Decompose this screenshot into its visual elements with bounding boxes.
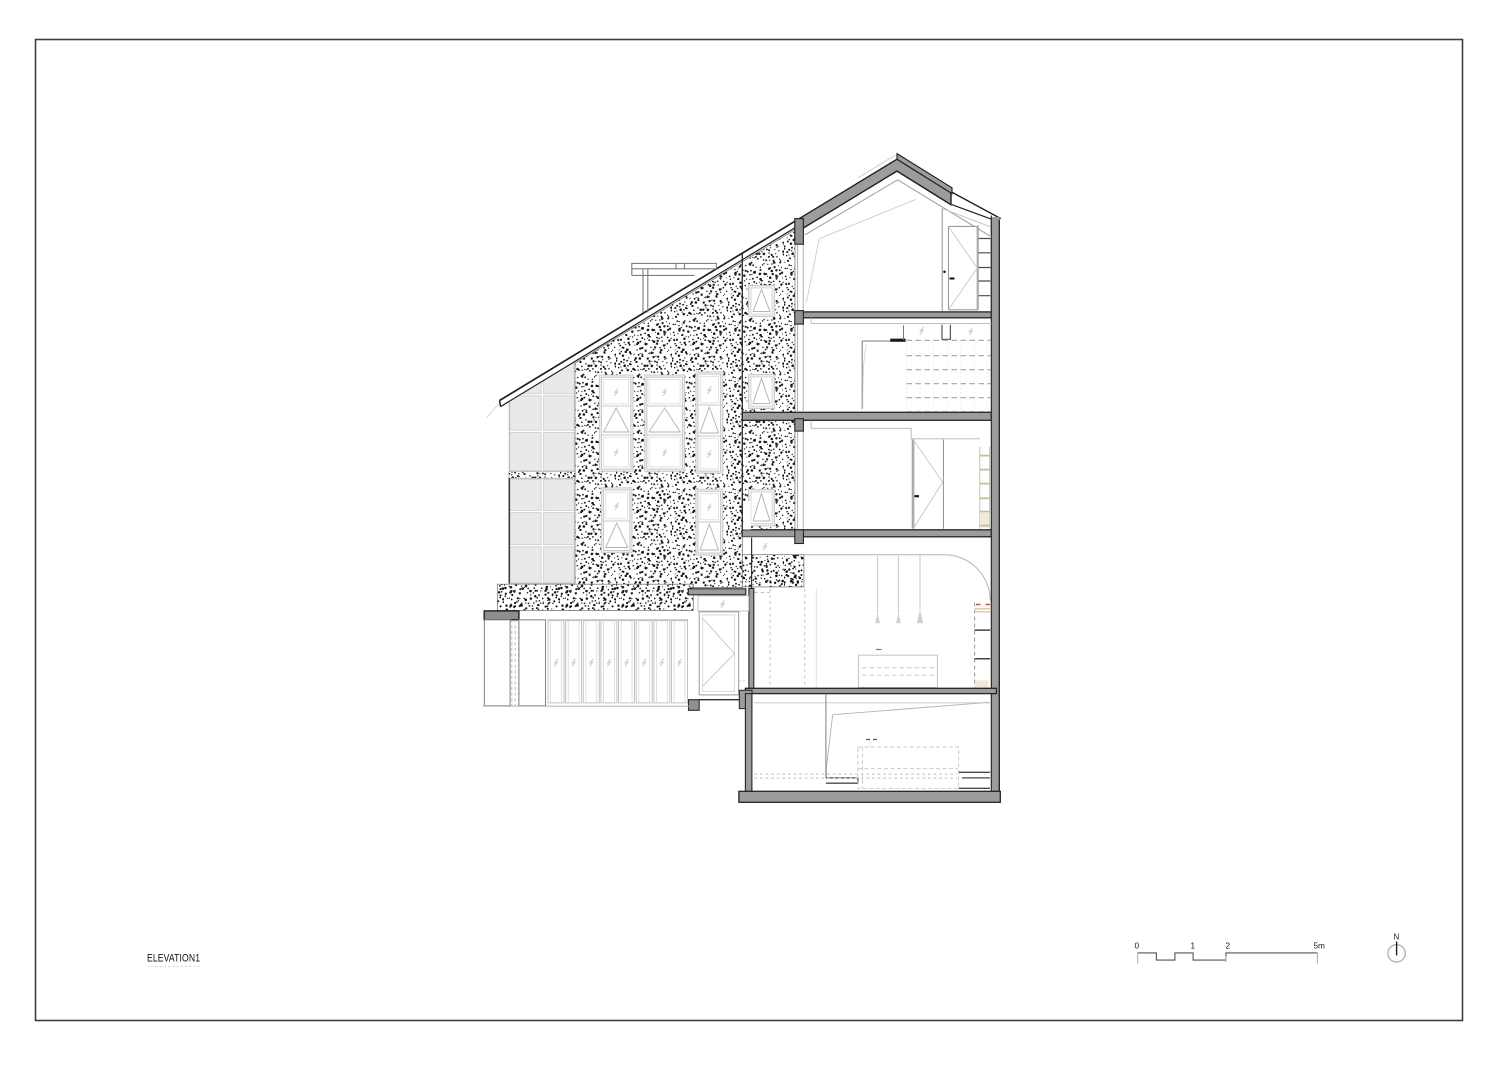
svg-text:2: 2: [1226, 942, 1231, 951]
svg-text:N: N: [1394, 933, 1400, 942]
svg-text:0: 0: [1135, 942, 1140, 951]
svg-text:1: 1: [1191, 942, 1196, 951]
svg-text:ELEVATION1: ELEVATION1: [147, 952, 200, 964]
svg-text:5m: 5m: [1314, 942, 1326, 951]
